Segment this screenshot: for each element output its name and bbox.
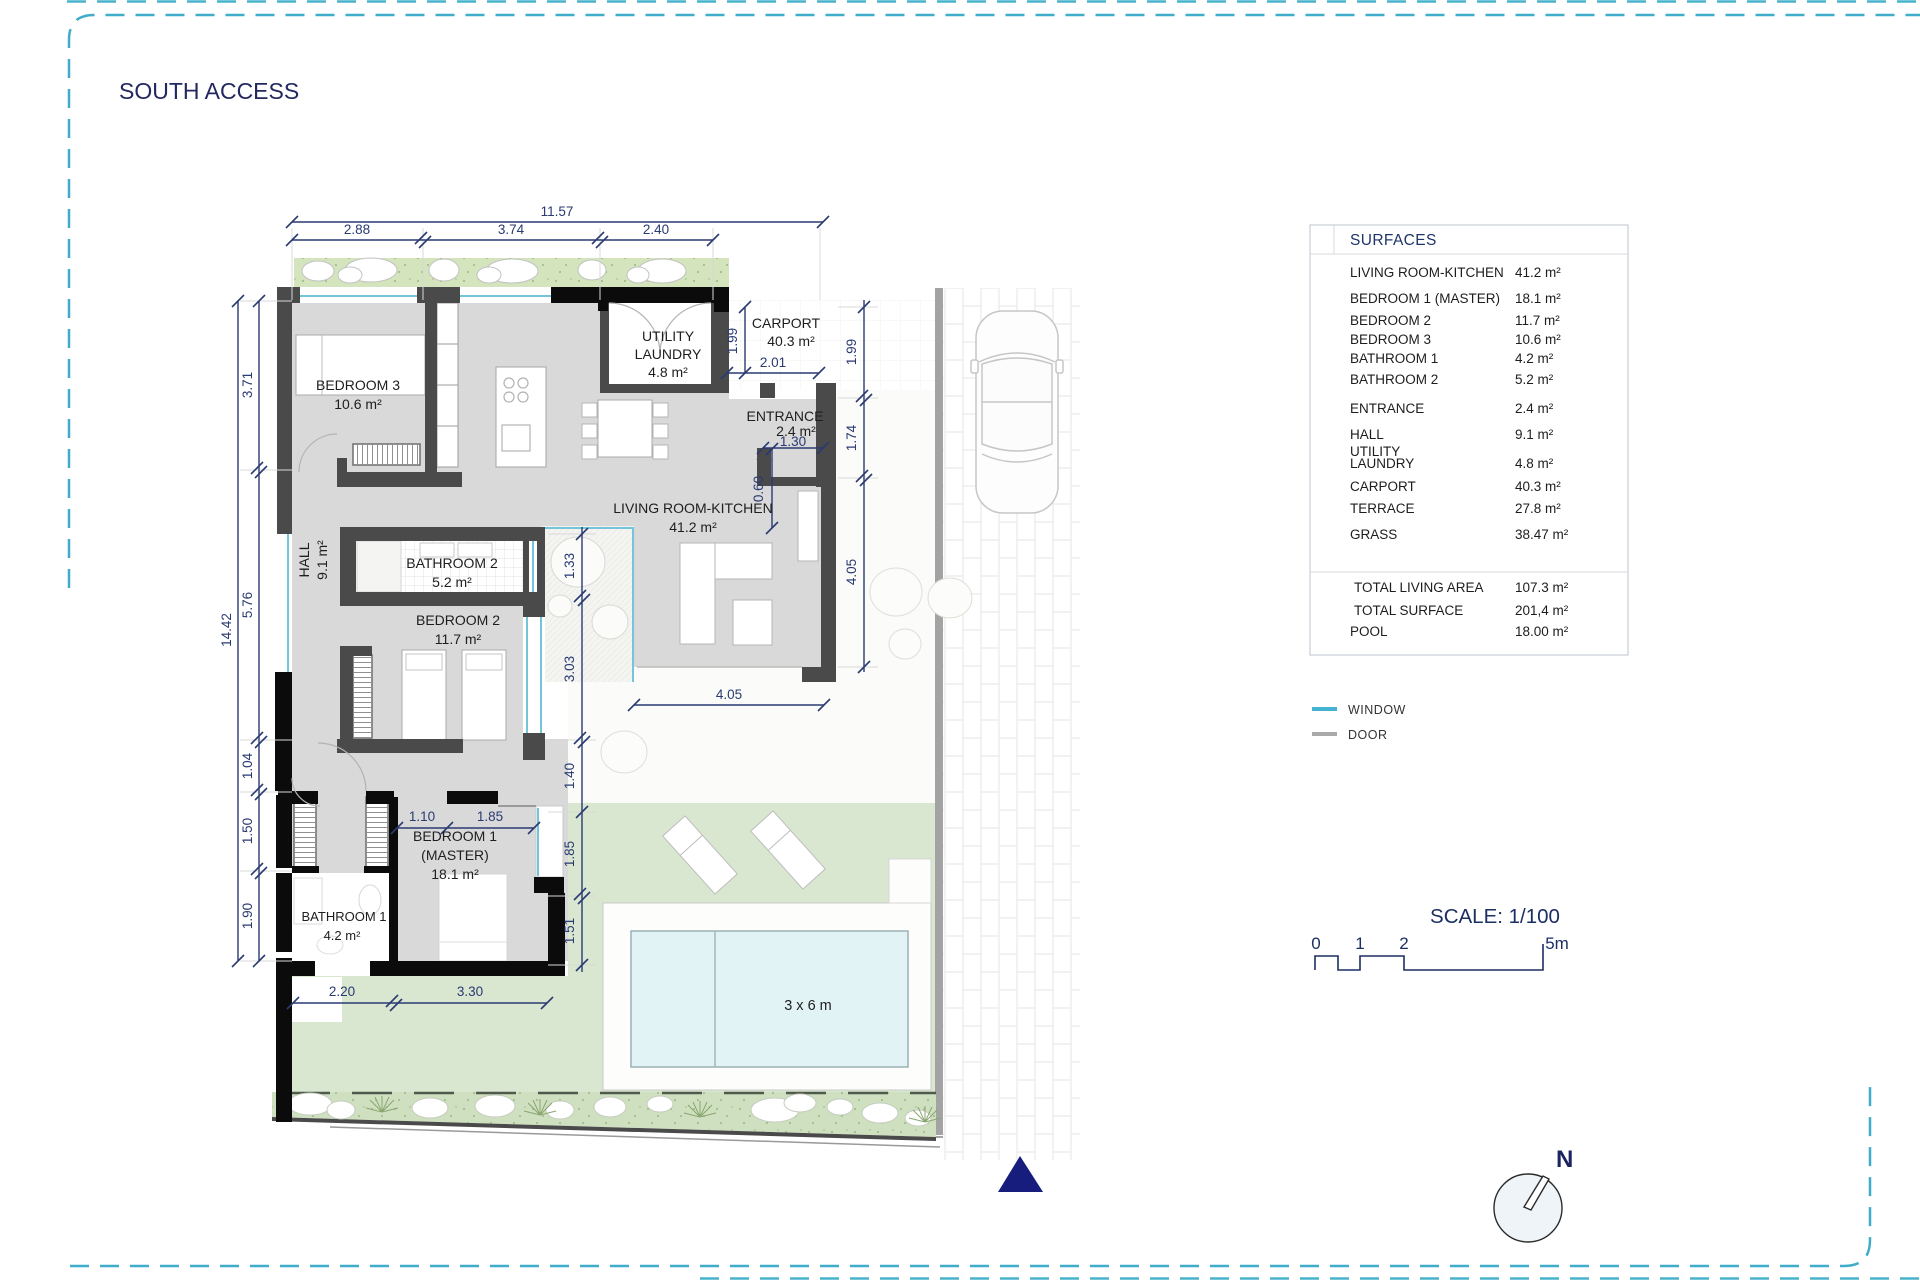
svg-text:GRASS: GRASS	[1350, 527, 1397, 542]
svg-text:11.7 m²: 11.7 m²	[435, 631, 482, 647]
svg-text:18.1 m²: 18.1 m²	[1515, 291, 1561, 306]
svg-text:ENTRANCE: ENTRANCE	[1350, 401, 1424, 416]
svg-text:0: 0	[1311, 934, 1320, 953]
svg-text:3 x 6 m: 3 x 6 m	[784, 998, 832, 1014]
svg-text:2: 2	[1399, 934, 1408, 953]
svg-text:CARPORT: CARPORT	[1350, 479, 1416, 494]
svg-text:5m: 5m	[1545, 934, 1569, 953]
svg-text:40.3 m²: 40.3 m²	[767, 333, 815, 349]
svg-text:N: N	[1556, 1146, 1573, 1173]
svg-text:18.00 m²: 18.00 m²	[1515, 624, 1569, 639]
svg-text:4.2 m²: 4.2 m²	[1515, 351, 1554, 366]
svg-text:4.8 m²: 4.8 m²	[1515, 456, 1554, 471]
svg-text:HALL: HALL	[1350, 427, 1384, 442]
svg-text:2.20: 2.20	[329, 984, 355, 999]
svg-text:BATHROOM 2: BATHROOM 2	[1350, 372, 1438, 387]
svg-text:5.2 m²: 5.2 m²	[1515, 372, 1554, 387]
svg-text:1.51: 1.51	[562, 918, 577, 944]
svg-text:1.74: 1.74	[844, 424, 859, 451]
svg-text:3.03: 3.03	[562, 656, 577, 682]
svg-text:BEDROOM 1: BEDROOM 1	[413, 828, 497, 844]
svg-text:TOTAL LIVING AREA: TOTAL LIVING AREA	[1354, 580, 1484, 595]
svg-text:2.4 m²: 2.4 m²	[1515, 401, 1554, 416]
svg-text:LAUNDRY: LAUNDRY	[1350, 456, 1414, 471]
svg-text:LAUNDRY: LAUNDRY	[635, 346, 702, 362]
svg-text:41.2 m²: 41.2 m²	[669, 519, 717, 535]
svg-text:HALL: HALL	[296, 542, 312, 577]
svg-text:(MASTER): (MASTER)	[421, 847, 489, 863]
svg-text:27.8 m²: 27.8 m²	[1515, 501, 1561, 516]
svg-text:1.33: 1.33	[562, 553, 577, 579]
svg-text:2.40: 2.40	[643, 222, 669, 237]
svg-text:107.3 m²: 107.3 m²	[1515, 580, 1569, 595]
svg-text:11.7 m²: 11.7 m²	[1515, 313, 1560, 328]
svg-text:11.57: 11.57	[541, 204, 574, 219]
svg-text:1.04: 1.04	[240, 752, 255, 779]
svg-text:LIVING ROOM-KITCHEN: LIVING ROOM-KITCHEN	[1350, 265, 1504, 280]
svg-text:4.8 m²: 4.8 m²	[648, 364, 688, 380]
svg-text:10.6 m²: 10.6 m²	[1515, 332, 1561, 347]
svg-text:18.1 m²: 18.1 m²	[431, 866, 479, 882]
svg-text:201,4 m²: 201,4 m²	[1515, 603, 1569, 618]
svg-text:CARPORT: CARPORT	[752, 315, 821, 331]
svg-text:14.42: 14.42	[219, 613, 234, 647]
svg-text:5.76: 5.76	[240, 592, 255, 618]
svg-text:BEDROOM 2: BEDROOM 2	[1350, 313, 1431, 328]
svg-text:10.6 m²: 10.6 m²	[334, 396, 382, 412]
svg-text:SURFACES: SURFACES	[1350, 232, 1437, 249]
svg-text:1.10: 1.10	[409, 809, 435, 824]
svg-text:LIVING ROOM-KITCHEN: LIVING ROOM-KITCHEN	[613, 500, 772, 516]
svg-text:TOTAL SURFACE: TOTAL SURFACE	[1354, 603, 1463, 618]
svg-text:BATHROOM 2: BATHROOM 2	[406, 555, 498, 571]
svg-text:WINDOW: WINDOW	[1348, 703, 1406, 717]
svg-text:0.60: 0.60	[751, 476, 766, 502]
svg-text:DOOR: DOOR	[1348, 728, 1388, 742]
svg-text:2.88: 2.88	[344, 222, 370, 237]
svg-text:1.40: 1.40	[562, 763, 577, 789]
svg-text:40.3 m²: 40.3 m²	[1515, 479, 1561, 494]
svg-text:5.2 m²: 5.2 m²	[432, 574, 472, 590]
svg-text:TERRACE: TERRACE	[1350, 501, 1415, 516]
svg-text:BEDROOM 2: BEDROOM 2	[416, 612, 500, 628]
svg-text:9.1 m²: 9.1 m²	[1515, 427, 1554, 442]
svg-text:1.99: 1.99	[844, 339, 859, 365]
svg-text:4.2 m²: 4.2 m²	[324, 928, 362, 943]
svg-text:1.50: 1.50	[240, 818, 255, 844]
svg-text:1.99: 1.99	[725, 328, 740, 354]
svg-text:3.74: 3.74	[498, 222, 525, 237]
svg-text:1.90: 1.90	[240, 903, 255, 929]
svg-text:BEDROOM 3: BEDROOM 3	[316, 377, 400, 393]
svg-text:4.05: 4.05	[716, 687, 742, 702]
svg-text:BEDROOM 1 (MASTER): BEDROOM 1 (MASTER)	[1350, 291, 1500, 306]
svg-text:UTILITY: UTILITY	[642, 328, 695, 344]
svg-text:4.05: 4.05	[844, 559, 859, 585]
svg-text:1.85: 1.85	[477, 809, 503, 824]
svg-text:1: 1	[1355, 934, 1364, 953]
svg-text:38.47 m²: 38.47 m²	[1515, 527, 1569, 542]
svg-text:BATHROOM 1: BATHROOM 1	[302, 909, 387, 924]
svg-text:SCALE: 1/100: SCALE: 1/100	[1430, 905, 1560, 928]
svg-text:ENTRANCE: ENTRANCE	[746, 408, 823, 424]
svg-text:BEDROOM 3: BEDROOM 3	[1350, 332, 1431, 347]
svg-text:1.85: 1.85	[562, 841, 577, 867]
svg-text:BATHROOM 1: BATHROOM 1	[1350, 351, 1438, 366]
svg-text:41.2 m²: 41.2 m²	[1515, 265, 1561, 280]
svg-text:2.4 m²: 2.4 m²	[776, 423, 816, 439]
svg-text:SOUTH ACCESS: SOUTH ACCESS	[119, 78, 299, 104]
svg-text:POOL: POOL	[1350, 624, 1388, 639]
svg-text:9.1 m²: 9.1 m²	[314, 540, 330, 580]
svg-text:2.01: 2.01	[760, 355, 786, 370]
svg-text:3.30: 3.30	[457, 984, 483, 999]
svg-text:3.71: 3.71	[240, 372, 255, 398]
